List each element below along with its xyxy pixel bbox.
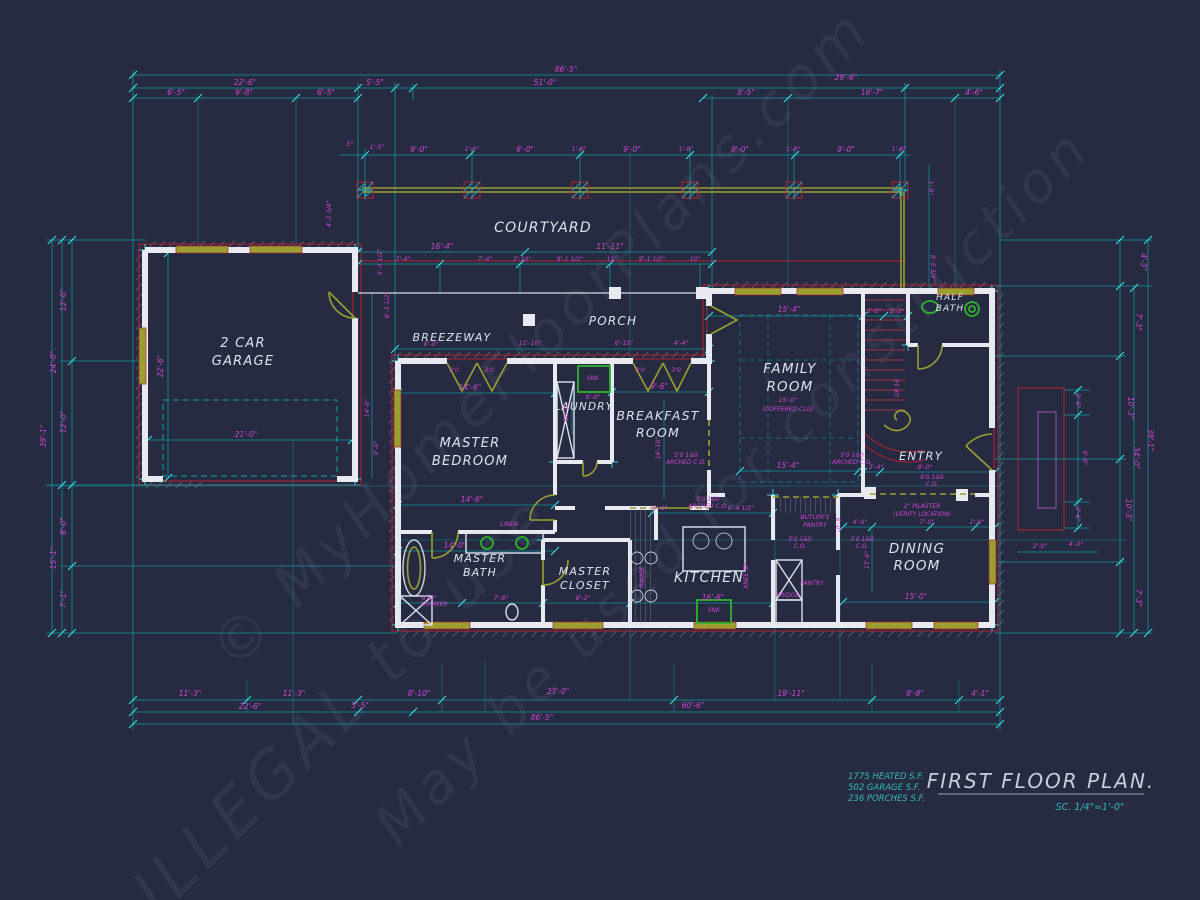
dim: 4'-0" [1069,541,1084,548]
svg-text:ARCHED C.O.: ARCHED C.O. [831,459,872,466]
dim: 4'-2 3/4" [326,201,333,228]
svg-text:GARAGE: GARAGE [212,354,274,369]
dim: 4'-3" [1139,253,1148,271]
label-master-bath: MASTER [454,552,507,565]
dim: 5" [347,141,354,148]
dim: 2'-6" [1074,507,1081,522]
note-arched-opening: 5'0 1&0 [840,452,864,459]
dim: 8'-0" [918,464,933,471]
svg-text:C.O.: C.O. [794,543,807,550]
door-size-label: 3'0 [449,367,459,374]
dim: 9'-0" [623,145,641,154]
label-family: FAMILY [763,361,817,377]
dim: 8'-0" [424,341,439,348]
note-cased-opening: 3'0 1&0 [788,536,812,543]
scale-text: SC. 1/4"=1'-0" [1056,802,1125,813]
dim: 2'-10" [513,256,532,263]
porch-post [523,314,535,326]
dim: 1'-8" [465,146,480,153]
note-coffered-ceiling: (COFFERED CLG) [763,406,814,413]
svg-text:BATH: BATH [936,304,965,314]
note-shower: SHOWER [421,601,448,608]
dim: 1'-8" [892,146,907,153]
dim: 39'-1" [39,425,48,448]
dim: 11'-10" [519,340,542,347]
dim: 34'-0" [1132,447,1141,470]
dim: 11'-3" [179,689,202,698]
dim: 5'-5" [351,701,369,710]
butler-counter [776,497,836,513]
dim: 22'-6" [239,702,262,711]
door-size-label: 3'0 [484,367,494,374]
note-butlers-pantry: BUTLER'S [801,514,830,521]
dim: 29'-6" [835,73,858,82]
dim: 15'-4" [777,461,800,470]
label-garage: 2 CAR [220,336,265,351]
label-kitchen: KITCHEN [674,570,744,586]
dim: 10'-3" [1124,499,1133,522]
dim: 15'-0" [779,397,798,404]
dim: 5'-5" [366,78,384,87]
dim: 7'-3" [1134,313,1143,331]
dim: 21'-0" [235,430,258,439]
dim: 9'-8" [235,88,253,97]
note-knee-space: KNEE SP [743,563,750,589]
dim: 6'-5" [167,88,185,97]
dim: 2'-0" [1033,543,1048,550]
dim: 39'-1" [1146,429,1155,452]
svg-text:C.O.: C.O. [926,481,939,488]
dim: 9'-1 1/2" [639,256,666,263]
dim: 9'-0" [410,145,428,154]
dim: 51'-0" [534,78,557,87]
dim: 9'-1 1/2" [557,256,584,263]
dim: 12'-0" [59,411,68,434]
note-pilaster: 2" PILASTER [904,503,941,510]
dining-pilaster [956,489,968,501]
note-arched-opening: 5'0 1&0 [674,452,698,459]
dim: 4'-1" [971,689,989,698]
svg-text:C.O.: C.O. [856,543,869,550]
dim: 6'-5" [317,88,335,97]
dim: 22'-6" [156,355,165,378]
svg-text:CLOSET: CLOSET [560,579,610,592]
note-fridge: FRIDGE [777,592,800,599]
note-entry-opening: 6'0 1&0 [920,474,944,481]
dim: 9'-0" [373,441,380,456]
svg-text:BATH: BATH [463,566,497,579]
dining-pilaster [864,487,876,499]
svg-text:ARCHED C.O.: ARCHED C.O. [687,503,728,510]
dim: 4'-0" [853,519,868,526]
dim: 15'-4" [778,305,801,314]
dim: 6'-3 1/2" [384,292,391,319]
dim: 7'-0" [920,519,935,526]
dim: 16'-6" [702,593,725,602]
dim: 7'-4" [396,256,411,263]
dim: 6'-4 1/2" [728,505,755,512]
svg-text:ROOM: ROOM [893,558,940,574]
dim: 22'-6" [234,78,257,87]
dim: 9'-6" [650,382,668,391]
dim: 14'-0" [364,399,371,418]
dim: 16'-10" [655,437,662,460]
dim: 11'-11" [596,242,623,251]
note-pantry: PANTRY [800,580,825,587]
svg-text:PANTRY: PANTRY [803,522,828,529]
dim: 14'-0" [444,541,467,550]
dim: 6'-0" [834,518,841,533]
note-linen: LINEN [500,521,518,528]
dim: 7'-3" [1134,589,1143,607]
note-arched-opening: 5'0 1&0 [696,496,720,503]
dim: 1'-5" [370,144,385,151]
label-master-closet: MASTER [559,565,612,578]
dim: 9'-0" [731,145,749,154]
dim: 16'-0" [563,403,570,422]
label-master-bedroom: MASTER [440,436,501,451]
porch-post [609,287,621,299]
dim: 16'-4" [431,242,454,251]
dim: 12'-0" [59,289,68,312]
note-sink: SNK [587,375,600,382]
dim: 5'-3 1/2" [377,249,384,276]
background [0,0,1200,900]
dim: 10" [690,256,701,263]
dim: 2'-8" [970,519,985,526]
dim: 8'-5" [737,88,755,97]
dim: 15'-0" [905,592,928,601]
dim: 8'-0" [59,517,68,535]
dim: 19'-11" [777,689,804,698]
note-stair-up: UP 16 [894,379,901,397]
dim: 1'-8" [679,146,694,153]
dim: 2'-6" [1074,394,1081,409]
dim: 8'-8" [906,689,924,698]
porch-post [696,287,708,299]
dim: 10" [607,256,618,263]
dim: 86'-5" [531,713,554,722]
door-size-label: 3'0 [635,367,645,374]
dim: 9'-6" [653,505,668,512]
note-sink: SNK [708,607,721,614]
label-breakfast: BREAKFAST [616,408,699,423]
label-half-bath: HALF [936,293,964,303]
dim: 1'-8" [786,146,801,153]
door-size-label: 3'0 [671,367,681,374]
dim: 9'-0" [837,145,855,154]
dim: 60'-6" [682,701,705,710]
dim: 7'-1" [59,590,68,608]
dim: 16'-7" [861,88,884,97]
label-dining: DINING [889,541,945,557]
svg-text:ARCHED C.O.: ARCHED C.O. [665,459,706,466]
dim: 8'-10" [408,689,431,698]
label-porch: PORCH [589,314,637,328]
note-cased-opening: 3'0 1&0 [850,536,874,543]
dim: 9'-0" [516,145,534,154]
dim: 4'-4" [674,340,689,347]
dim: 10'-3" [1126,397,1135,420]
dim: 4'-6" [965,88,983,97]
label-courtyard: COURTYARD [494,220,592,236]
sheet-title: FIRST FLOOR PLAN. [927,769,1156,793]
dim: 2'-0" [867,308,882,315]
dim: 14'-6" [459,383,482,392]
dim: 24'-0" [49,351,58,374]
svg-text:(VERIFY LOCATION): (VERIFY LOCATION) [893,511,951,518]
note-range: RANGE [639,566,646,587]
garage-area-text: 502 GARAGE S.F. [848,783,920,793]
dim: 1'-8" [572,146,587,153]
dim: 1'-8" [927,181,934,196]
dim: 23'-0" [547,687,570,696]
dim: 8'-2" [576,595,591,602]
dim: 7'-8" [494,595,509,602]
dim: 86'-5" [555,65,578,74]
label-entry: ENTRY [899,449,943,463]
heated-area-text: 1775 HEATED S.F. [848,772,924,782]
dim: 6'-10" [615,340,634,347]
dim: 8'-8" [1081,451,1088,466]
dim: 2'-2" [890,308,905,315]
dim: 15'-1" [49,547,58,570]
dim: 6'-0" [586,394,601,401]
floor-plan-canvas: © MyHomeFloorPlans.com ILLEGAL to use Ma… [0,0,1200,900]
svg-text:ROOM: ROOM [766,379,813,395]
porches-area-text: 236 PORCHES S.F. [848,794,925,804]
dim: 11'-3" [283,689,306,698]
dim: 7'-4" [478,256,493,263]
dim: 13'-0" [864,551,871,570]
dim: 14'-6" [461,495,484,504]
svg-text:BEDROOM: BEDROOM [432,454,508,469]
dim: 8'-5 3/4" [929,255,936,282]
